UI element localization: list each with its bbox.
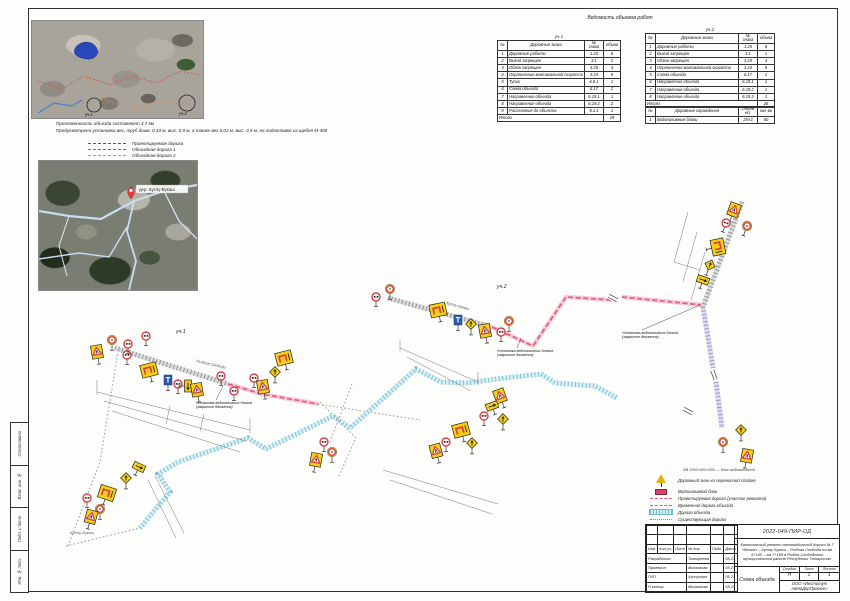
title-block-cell: [658, 526, 674, 535]
title-block-cell: [658, 535, 674, 544]
road-sign-tri: [83, 509, 99, 530]
title-block-bottom: Схема объезда СтадияЛистЛистовП11 ООО «И…: [735, 567, 839, 592]
sheet-title: Схема объезда: [735, 567, 780, 592]
title-block-cell: [673, 526, 686, 535]
road-project: [622, 297, 703, 305]
road-sign-tri: [190, 382, 204, 403]
title-block-cell: Изм.: [647, 544, 658, 553]
columns-header-row: Изм.Кол.уч.Лист№ док.Подп.Дата: [647, 544, 738, 553]
dimension-line: [674, 212, 688, 262]
legend-label: Дорога объезда: [678, 510, 710, 515]
legend-icon-wrap: [648, 474, 674, 487]
title-block-cell: Хуснуллин: [687, 573, 711, 582]
road-sign-round: [320, 438, 328, 452]
title-block-cell: Лист: [673, 544, 686, 553]
road-break-mark: [709, 368, 719, 381]
legend-label: Проектируемая дорога (участок ремонта): [678, 496, 766, 501]
title-block-cell: [711, 573, 724, 582]
legend-icon-wrap: [648, 519, 674, 520]
road-sign-round: [174, 380, 182, 394]
road-sign-diam: [498, 414, 509, 430]
road-sign-tri: [429, 443, 445, 464]
title-block-cell: № док.: [687, 544, 711, 553]
title-block-cell: [647, 535, 658, 544]
section-label: уч.2: [496, 284, 507, 290]
signature-row: ГИПХуснуллин05.23: [647, 573, 738, 582]
legend-label: Временная дорога объезда: [678, 503, 733, 508]
legend-label: Существующая дорога: [678, 517, 726, 522]
signature-row: Н.контр.Мингазова05.23: [647, 582, 738, 591]
dimension-line: [683, 232, 697, 282]
title-block-cell: [687, 535, 711, 544]
hatched-road-icon: [649, 509, 673, 515]
title-block-cell: Проверил: [647, 563, 687, 572]
title-block: Изм.Кол.уч.Лист№ док.Подп.ДатаРазработал…: [645, 524, 840, 593]
road-sign-round: [142, 332, 150, 346]
dimension-line: [390, 480, 492, 514]
place-label: Рыбная Слобода: [196, 359, 226, 370]
organization-name: ООО «Институт АвтоДорПроект»: [780, 581, 839, 592]
dotted-line-icon: [650, 519, 672, 520]
legend-row: Дорожный знак на переносной стойке: [648, 474, 790, 487]
annotation-leader: [216, 386, 223, 400]
annotation-text: Установка водоналивных блоков(закрытие д…: [196, 401, 252, 409]
water-block-icon: [655, 489, 667, 495]
title-block-cell: ГИП: [647, 573, 687, 582]
road-sign-diam: [270, 367, 281, 383]
document-code: 2022-049-ПИР-ОД: [735, 525, 839, 539]
dimension-line: [166, 406, 170, 424]
annotation-text: Установка водоналивных блоков(закрытие д…: [622, 331, 678, 339]
title-block-cell: Кол.уч.: [658, 544, 674, 553]
road-sign-roundY: [718, 437, 728, 452]
legend-row: Водоналивной блок: [648, 489, 790, 495]
road-sign-round: [230, 387, 238, 401]
legend-icon-wrap: [648, 509, 674, 515]
road-sign-board: [275, 350, 295, 372]
legend-icon-wrap: [648, 505, 674, 506]
road-sign-tri: [308, 452, 322, 473]
legend-note: БВ 2000×500×800 — блок водоналивной: [648, 468, 790, 472]
stage-value: 1: [819, 573, 839, 580]
road-sign-round: [480, 412, 488, 426]
title-block-cell: Н.контр.: [647, 582, 687, 591]
scheme-legend: БВ 2000×500×800 — блок водоналивной Доро…: [648, 468, 790, 524]
road-sign-board: [705, 238, 726, 257]
title-block-cell: Мингазова: [687, 582, 711, 591]
signature-row: РазработалТимофеева05.23: [647, 554, 738, 563]
title-block-left: Изм.Кол.уч.Лист№ док.Подп.ДатаРазработал…: [646, 525, 735, 592]
title-block-right: 2022-049-ПИР-ОД Капитальный ремонт автом…: [735, 525, 839, 592]
dimension-line: [112, 411, 240, 452]
road-break-mark: [681, 405, 695, 416]
title-block-cell: [711, 554, 724, 563]
road-sign-round: [442, 438, 450, 452]
warning-sign-icon: [656, 474, 666, 487]
legend-row: Дорога объезда: [648, 509, 790, 515]
title-block-cell: [711, 582, 724, 591]
title-block-cell: Разработал: [647, 554, 687, 563]
road-existing: [330, 384, 352, 442]
title-block-cell: [647, 526, 658, 535]
title-block-stage-org: СтадияЛистЛистовП11 ООО «Институт АвтоДо…: [780, 567, 839, 592]
road-sign-tri: [90, 344, 104, 365]
legend-row: Существующая дорога: [648, 517, 790, 522]
road-cyan: [140, 369, 617, 528]
project-name: Капитальный ремонт автомобильной дороги …: [735, 539, 839, 567]
place-label: Кутлу-Букаш: [70, 531, 95, 535]
pink-dashed-line-icon: [650, 498, 672, 499]
annotation-text: Установка водоналивных блоков(закрытие д…: [497, 349, 553, 357]
road-sign-diam: [736, 425, 747, 441]
road-sign-roundY: [504, 316, 514, 331]
place-label: Кутлу-Букаш: [446, 301, 471, 311]
legend-row: Проектируемая дорога (участок ремонта): [648, 496, 790, 501]
stage-grid: СтадияЛистЛистовП11: [780, 567, 839, 581]
title-block-cell: Подп.: [711, 544, 724, 553]
title-block-cell: Тимофеева: [687, 554, 711, 563]
dimension-line: [400, 348, 478, 382]
legend-label: Дорожный знак на переносной стойке: [678, 478, 756, 483]
road-sign-tri: [739, 448, 753, 469]
legend-icon-wrap: [648, 498, 674, 499]
title-block-cell: [711, 563, 724, 572]
stage-value: П: [780, 573, 800, 580]
legend-label: Водоналивной блок: [678, 489, 717, 494]
signature-row: ПроверилМингазова05.23: [647, 563, 738, 572]
section-label: уч.1: [175, 329, 186, 335]
dimension-line: [383, 470, 498, 504]
road-sign-roundY: [739, 220, 753, 237]
gray-dashed-line-icon: [650, 505, 672, 506]
road-sign-sboard: [130, 461, 146, 477]
road-sign-diam: [467, 438, 478, 454]
dimension-line: [407, 357, 471, 391]
road-sign-board: [429, 302, 448, 323]
dimension-line: [674, 262, 700, 270]
title-block-cell: [687, 526, 711, 535]
road-sign-diam: [121, 473, 132, 489]
road-sign-round: [123, 351, 131, 365]
road-sign-board: [140, 362, 160, 384]
legend-icon-wrap: [648, 489, 674, 495]
road-sign-blue: [164, 375, 172, 391]
road-sign-round: [497, 328, 505, 342]
road-sign-board: [96, 484, 117, 507]
change-row: [647, 535, 738, 544]
title-block-cell: [711, 526, 724, 535]
road-sign-blue: [454, 315, 462, 331]
road-sign-round: [372, 293, 380, 307]
title-block-signatures: Изм.Кол.уч.Лист№ док.Подп.ДатаРазработал…: [646, 525, 738, 592]
annotation-leader: [642, 305, 700, 330]
dimension-line: [97, 392, 250, 430]
change-row: [647, 526, 738, 535]
road-purple: [703, 307, 713, 368]
road-sign-roundY: [327, 447, 337, 462]
title-block-cell: [673, 535, 686, 544]
road-sign-round: [83, 494, 91, 508]
drawing-sheet: Согласовано Взам. инв. № Подп. и дата Ин…: [0, 0, 850, 601]
legend-row: Временная дорога объезда: [648, 503, 790, 508]
title-block-cell: [711, 535, 724, 544]
stage-value: 1: [800, 573, 820, 580]
title-block-cell: Мингазова: [687, 563, 711, 572]
